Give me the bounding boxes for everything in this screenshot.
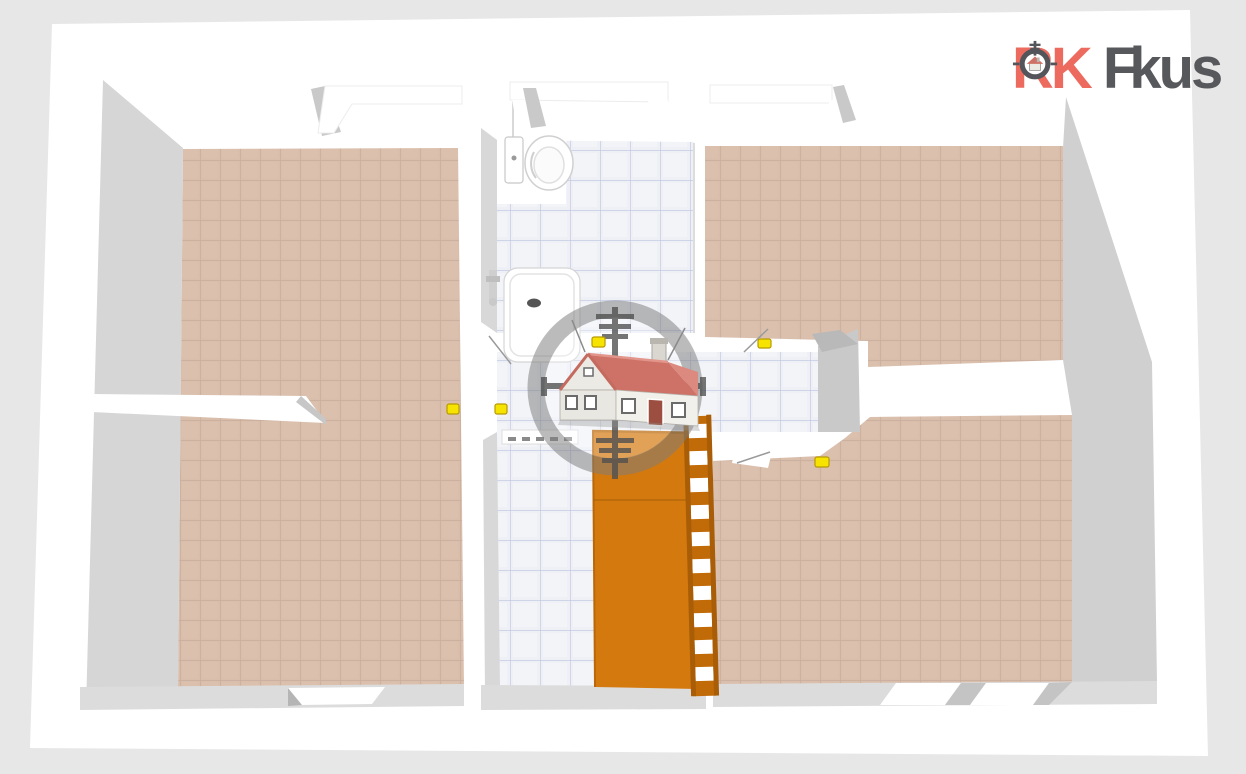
lower-corridor-left-face (483, 432, 500, 696)
brand-logo-kus: kus (1129, 36, 1220, 101)
floorplan-render (0, 0, 1246, 774)
bottom-wall-center (481, 685, 706, 710)
lower-corridor-floor (497, 432, 595, 686)
brand-logo: RK F kus (1012, 40, 1220, 98)
bathtub-drain (527, 299, 541, 308)
floorplan-screenshot: RK F kus (0, 0, 1246, 774)
bottom-wall-left (80, 684, 464, 710)
door-handle-bottom-right-room (815, 457, 829, 467)
door-handle-left-room (447, 404, 459, 414)
door-handle-bathroom (592, 337, 605, 347)
window-opening-left (288, 687, 385, 705)
toilet (505, 136, 573, 190)
top-right-room-floor (705, 146, 1063, 367)
door-handle-top-right-room (758, 339, 771, 348)
door-handle-corridor-left (495, 404, 507, 414)
